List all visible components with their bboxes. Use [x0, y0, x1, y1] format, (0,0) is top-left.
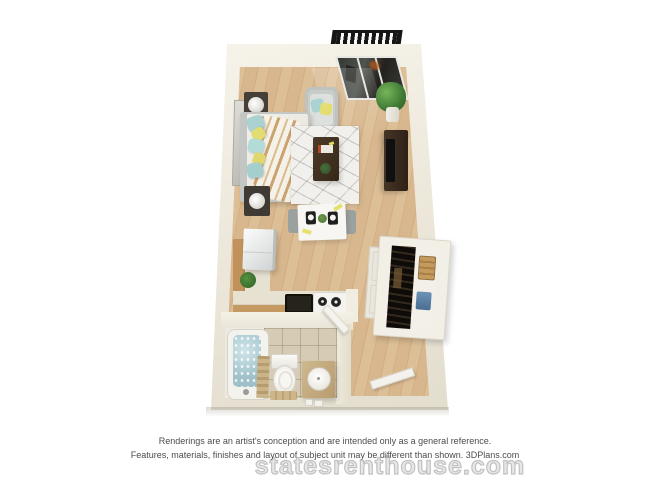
- table-plant-icon: [320, 163, 331, 174]
- centerpiece-plant-icon: [318, 214, 327, 223]
- tub-faucet-icon: [243, 389, 249, 395]
- potted-plant-pot: [386, 107, 399, 122]
- folded-clothes-blue-icon: [416, 291, 432, 310]
- placemat-icon: [306, 211, 316, 224]
- tv-icon: [386, 139, 395, 182]
- plate-icon: [308, 214, 314, 220]
- toiletry-icon: [305, 399, 313, 406]
- disclaimer: Renderings are an artist's conception an…: [0, 434, 650, 462]
- tv-console: [384, 130, 408, 191]
- bathroom-wall-right: [336, 324, 351, 404]
- closet-hanging-clothes: [386, 245, 416, 328]
- unit-drop-shadow: [206, 407, 449, 417]
- wardrobe-closet: [373, 236, 452, 341]
- lamp-icon: [248, 97, 264, 113]
- coffee-table: [313, 137, 339, 181]
- book-icon: [318, 145, 333, 153]
- fridge-door-line: [243, 251, 273, 253]
- napkin-yellow-icon: [302, 228, 312, 234]
- refrigerator: [242, 228, 276, 270]
- disclaimer-line2: Features, materials, finishes and layout…: [0, 448, 650, 462]
- bath-mat: [256, 356, 269, 398]
- floorplan-image: statesrenthouse.com Renderings are an ar…: [0, 0, 650, 488]
- drain-icon: [317, 377, 320, 380]
- napkin-yellow-icon: [329, 141, 335, 146]
- folded-clothes-tan-icon: [418, 255, 437, 280]
- disclaimer-line1: Renderings are an artist's conception an…: [0, 434, 650, 448]
- lamp-icon: [249, 193, 265, 209]
- nightstand-bottom: [244, 186, 270, 216]
- burner-icon: [331, 297, 341, 307]
- pillow-teal-icon: [246, 162, 264, 179]
- kitchen-sink: [285, 294, 313, 313]
- toiletry-icon: [314, 400, 323, 407]
- napkin-yellow-icon: [333, 203, 343, 211]
- toilet-mat: [270, 391, 297, 400]
- plate-icon: [330, 215, 336, 221]
- vanity-sink-icon: [307, 367, 331, 391]
- placemat-icon: [328, 211, 338, 224]
- dining-table: [297, 203, 346, 241]
- closet-shelf: [412, 247, 438, 330]
- pillow-yellow-icon: [319, 102, 333, 116]
- counter-plant-icon: [240, 272, 256, 288]
- bathroom-vanity: [302, 361, 335, 398]
- toilet-seat: [278, 371, 293, 390]
- clothes-tan-icon: [393, 268, 402, 289]
